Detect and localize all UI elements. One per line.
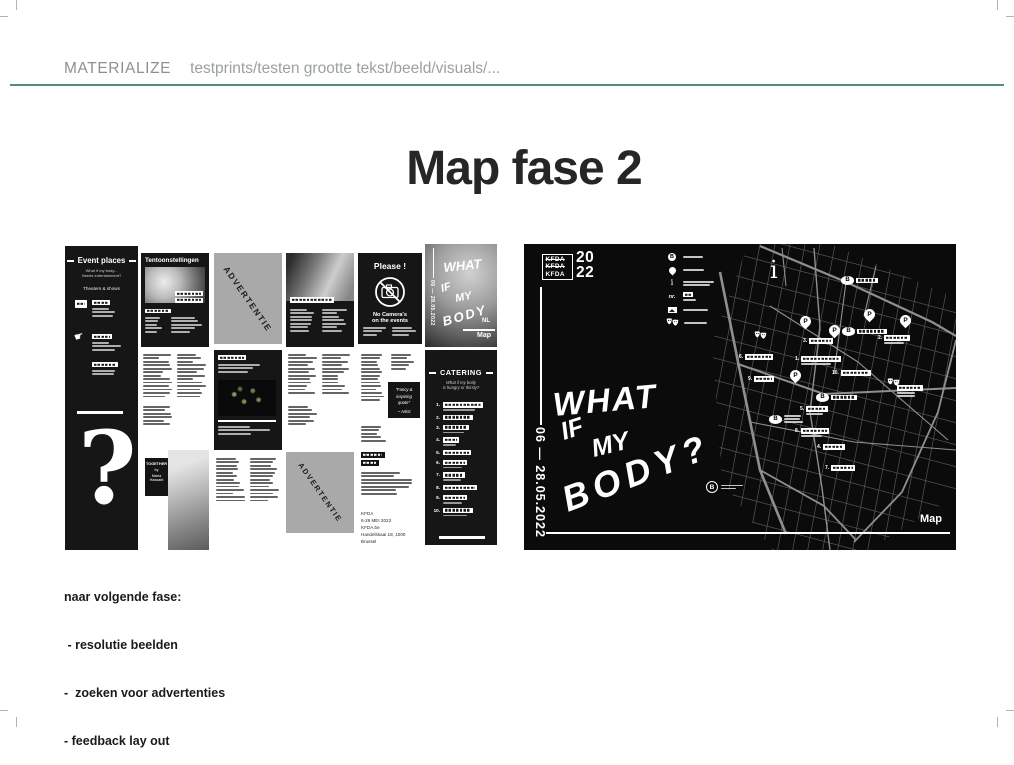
catering-item: 9. [431, 495, 493, 504]
text-line [250, 479, 270, 481]
together-line: TOGETHER [145, 462, 168, 466]
numbered-venue-label: 5. [800, 406, 828, 415]
parking-pin-icon: P [898, 313, 914, 329]
text-line [216, 468, 238, 470]
schedule-col-right [171, 317, 205, 334]
text-line [361, 475, 394, 477]
text-line [177, 392, 202, 394]
text-line [392, 327, 412, 329]
catering-subtitle2: is hungry or thirsty? [425, 385, 497, 390]
parking-pin-icon: P [862, 307, 878, 323]
notes-item: - feedback lay out [64, 733, 225, 749]
text-line [143, 371, 163, 373]
list-label-box [92, 334, 112, 339]
text-line [288, 354, 306, 356]
catering-name-box [443, 402, 483, 408]
venue-name-box [801, 428, 829, 434]
no-camera-icon [373, 275, 407, 309]
numbered-venue-label: 7. [825, 465, 855, 471]
text-line [288, 385, 307, 387]
text-line [361, 354, 382, 356]
venue-number: 10. [832, 370, 839, 376]
text-line [801, 363, 831, 365]
cover-lang: NL [482, 318, 490, 324]
text-column [288, 354, 318, 396]
text-line [145, 331, 157, 333]
venue-name-box [801, 356, 841, 362]
header: MATERIALIZE testprints/testen grootte te… [64, 60, 500, 78]
text-line [143, 423, 170, 425]
text-line [322, 357, 341, 359]
text-line [143, 382, 172, 384]
text-line [143, 357, 159, 359]
venue-number: 4. [817, 444, 821, 450]
text-line [143, 409, 165, 411]
text-line [171, 320, 198, 322]
venue-name-box [884, 335, 910, 341]
text-line [250, 493, 273, 495]
question-mark: ? [78, 418, 137, 518]
catering-number: 7. [431, 472, 440, 478]
catering-title: CATERING [440, 368, 482, 377]
text-line [218, 426, 250, 428]
text-line [216, 496, 245, 498]
svg-text:WHAT: WHAT [443, 256, 483, 275]
text-line [443, 444, 456, 446]
venue-number: 9. [748, 376, 752, 382]
text-line [361, 375, 380, 377]
catering-name-box [443, 472, 465, 478]
text-line [361, 364, 378, 366]
cover-rule [463, 329, 495, 331]
panel-please: Please ! No Camera's on the events [358, 253, 422, 344]
text-line [361, 429, 379, 431]
text-line [250, 489, 279, 491]
text-line [143, 354, 171, 356]
catering-end-rule [439, 536, 485, 539]
text-line [177, 396, 200, 398]
text-line [443, 409, 475, 411]
svg-text:MY: MY [454, 289, 474, 305]
text-line [288, 361, 313, 363]
metro-stop: B [816, 393, 857, 402]
info-point-glyph: i [770, 256, 778, 284]
text-line [145, 327, 162, 329]
text-line [288, 416, 310, 418]
text-line [322, 361, 348, 363]
quote-line: "Fancy & [388, 387, 420, 392]
catering-item: 6. [431, 460, 493, 469]
cover-dates-vertical: 06 — 28.05.2022 [429, 280, 435, 326]
text-line [361, 396, 384, 398]
text-line [288, 364, 308, 366]
text-line [784, 418, 800, 420]
cover-map-label: Map [477, 332, 491, 339]
stop-name-box [857, 329, 887, 335]
text-line [250, 468, 277, 470]
text-line [250, 486, 269, 488]
text-line [218, 371, 248, 373]
hand-icon: ☛ [72, 329, 85, 344]
text-line [177, 375, 205, 377]
text-line [361, 368, 380, 370]
catering-number: 10. [431, 508, 440, 514]
numbered-venue-label: 8. [795, 428, 829, 437]
text-line [177, 354, 196, 356]
text-line [897, 392, 915, 394]
text-column [288, 406, 318, 427]
parking-pin-icon: P [788, 368, 804, 384]
text-line [322, 392, 349, 394]
text-line [801, 435, 822, 437]
crop-mark [0, 710, 8, 711]
text-line [361, 486, 409, 488]
numbered-venue-label: 3. [803, 338, 833, 344]
text-line [177, 385, 206, 387]
brussels-b-logo: B [706, 481, 743, 493]
metro-b-icon: B [841, 276, 854, 285]
crop-mark [16, 0, 17, 10]
text-line [361, 385, 381, 387]
text-line [322, 330, 342, 332]
text-line [216, 482, 240, 484]
text-line [216, 472, 233, 474]
panel-together: TOGETHER by Maria Hassabi [141, 350, 209, 550]
notes-item: - resolutie beelden [64, 637, 225, 653]
text-line [361, 357, 380, 359]
text-line [290, 312, 314, 314]
text-line [322, 323, 346, 325]
notes-heading: naar volgende fase: [64, 589, 225, 605]
text-line [361, 389, 376, 391]
metro-b-icon: B [842, 327, 855, 336]
text-block [361, 472, 417, 496]
venue-name-box [841, 370, 871, 376]
text-line [288, 371, 309, 373]
crop-mark [1006, 710, 1014, 711]
venue-label [897, 385, 923, 397]
text-line [363, 330, 382, 332]
text-block [92, 308, 124, 318]
text-line [92, 308, 109, 310]
text-line [361, 479, 412, 481]
numbered-venue-label: 9. [748, 376, 774, 382]
text-line [361, 361, 377, 363]
text-line [290, 316, 312, 318]
text-line [92, 349, 115, 351]
text-line [288, 368, 315, 370]
text-line [361, 436, 381, 438]
text-line [143, 413, 171, 415]
venue-name-box [809, 338, 833, 344]
text-line [361, 382, 380, 384]
text-line [250, 465, 271, 467]
text-line [361, 433, 377, 435]
catering-name-box [443, 485, 477, 491]
text-line [288, 357, 317, 359]
text-block [363, 327, 388, 337]
svg-text:IF: IF [440, 281, 453, 295]
panel-cover: 06 — 28.05.2022 WHAT IF MY BODY NL Map [425, 244, 497, 347]
venue-name-box [831, 465, 855, 471]
plants-photo [218, 380, 276, 416]
text-line [143, 361, 169, 363]
panel-advertentie-2-col: ADVERTENTIE [286, 350, 354, 550]
text-line [391, 361, 414, 363]
text-line [92, 373, 114, 375]
catering-list: 1.2.3.4.5.6.7.8.9.10. [431, 402, 493, 520]
no-camera-line2: on the events [358, 318, 422, 324]
text-line [177, 371, 197, 373]
text-line [250, 482, 273, 484]
text-line [322, 368, 349, 370]
text-line [288, 420, 314, 422]
text-line [361, 489, 396, 491]
info-org: KFDA [361, 510, 422, 517]
parking-pin-icon: P [798, 314, 814, 330]
catering-item: 2. [431, 415, 493, 421]
text-line [250, 472, 275, 474]
text-block [218, 364, 274, 374]
text-line [143, 385, 169, 387]
text-line [92, 315, 113, 317]
text-line [322, 364, 342, 366]
text-line [218, 433, 251, 435]
info-address: Handelskaai 18, 1000 Brussel [361, 531, 422, 545]
crop-mark [997, 717, 998, 727]
text-line [177, 389, 200, 391]
venue-icon [75, 300, 87, 308]
text-line [784, 421, 803, 423]
panel-event-places: Event places What if my body... Needs en… [65, 246, 138, 550]
quote-line: quote" [388, 400, 420, 405]
stop-name-box [831, 395, 857, 401]
event-places-subtitle2: Needs entertainment? [65, 273, 138, 278]
venue-number: 1. [795, 356, 799, 362]
text-line [391, 368, 406, 370]
text-block [290, 309, 318, 333]
text-line [290, 319, 312, 321]
text-line [361, 392, 382, 394]
notes-item: - zoeken voor advertenties [64, 685, 225, 701]
catering-item: 3. [431, 425, 493, 434]
text-line [143, 389, 172, 391]
text-line [250, 458, 276, 460]
text-line [391, 354, 411, 356]
text-line [177, 357, 201, 359]
panel-advertentie-1: ADVERTENTIE [214, 253, 282, 344]
text-line [218, 429, 270, 431]
photo-caption-box [175, 291, 203, 296]
text-line [92, 370, 115, 372]
panel-catering: CATERING What if my body is hungry or th… [425, 350, 497, 545]
text-line [288, 389, 305, 391]
schedule-title-box [145, 309, 171, 313]
text-line [361, 472, 400, 474]
header-rule [10, 84, 1004, 86]
text-line [143, 406, 170, 408]
advertentie-label: ADVERTENTIE [296, 461, 344, 524]
catering-item: 4. [431, 437, 493, 446]
next-phase-notes: naar volgende fase: - resolutie beelden … [64, 557, 225, 765]
tentoonstellingen-title: Tentoonstellingen [145, 257, 209, 264]
together-label: TOGETHER by Maria Hassabi [145, 458, 168, 496]
venue-number: 8. [795, 428, 799, 434]
venue-number: 3. [803, 338, 807, 344]
text-line [216, 493, 233, 495]
text-line [216, 461, 239, 463]
list-label-box [92, 362, 118, 367]
text-line [216, 500, 245, 502]
plants-rule [218, 420, 276, 422]
text-line [216, 465, 237, 467]
text-line [177, 378, 193, 380]
text-line [177, 368, 204, 370]
fringe-label-box [361, 452, 385, 458]
cover-spine-line [433, 248, 434, 278]
text-line [171, 317, 195, 319]
text-line [361, 371, 382, 373]
text-line [250, 496, 278, 498]
text-line [288, 392, 315, 394]
text-line [288, 406, 308, 408]
together-line: by [145, 468, 168, 472]
text-line [250, 475, 273, 477]
text-column [322, 354, 352, 396]
text-line [171, 327, 195, 329]
map-label: Map [920, 513, 942, 525]
text-line [288, 409, 312, 411]
map-bottom-rule [546, 532, 950, 534]
text-line [288, 423, 306, 425]
text-line [92, 311, 115, 313]
text-line [216, 479, 234, 481]
catering-item: 8. [431, 485, 493, 491]
catering-number: 8. [431, 485, 440, 491]
text-line [250, 461, 273, 463]
text-line [443, 515, 467, 517]
text-line [322, 389, 342, 391]
text-line [322, 385, 345, 387]
text-line [322, 312, 337, 314]
text-line [288, 378, 310, 380]
info-dates: 6-28 MEI 2022 [361, 517, 422, 524]
numbered-venue-label: 2. [878, 335, 910, 344]
panel-photo-what [286, 253, 354, 347]
text-line [322, 316, 339, 318]
text-column [216, 458, 246, 503]
catering-name-box [443, 425, 469, 431]
catering-name-box [443, 508, 473, 514]
text-line [143, 378, 170, 380]
text-line [143, 392, 170, 394]
venue-name-box [745, 354, 773, 360]
text-block [92, 370, 122, 377]
text-line [290, 330, 309, 332]
catering-item: 5. [431, 450, 493, 456]
text-column [250, 458, 280, 503]
numbered-venue-label: 1. [795, 356, 841, 365]
photo-caption-box [290, 297, 334, 303]
text-line [177, 382, 202, 384]
text-line [322, 319, 344, 321]
panel-advertentie-2: ADVERTENTIE [286, 452, 354, 533]
crop-mark [997, 0, 998, 10]
venue-number: 6. [739, 354, 743, 360]
text-line [897, 395, 915, 397]
text-line [721, 485, 743, 487]
text-line [361, 493, 397, 495]
text-line [143, 375, 161, 377]
text-line [363, 334, 377, 336]
catering-name-box [443, 437, 459, 443]
text-line [145, 317, 160, 319]
print-spread-mockup: Event places What if my body... Needs en… [65, 244, 497, 550]
catering-number: 5. [431, 450, 440, 456]
text-line [361, 399, 380, 401]
catering-number: 4. [431, 437, 440, 443]
venue-name-box [754, 376, 774, 382]
text-line [288, 413, 317, 415]
event-places-title: Event places [78, 256, 126, 265]
text-column [361, 426, 387, 443]
fabric-photo [286, 253, 354, 301]
plants-subpanel [214, 350, 282, 450]
stop-name-box [856, 278, 878, 284]
text-block [92, 342, 124, 352]
text-column [361, 354, 387, 403]
catering-name-box [443, 460, 467, 466]
catering-number: 6. [431, 460, 440, 466]
text-line [290, 309, 307, 311]
plants-title-box [218, 355, 246, 360]
quote-line: inspiring [388, 394, 420, 399]
venue-name-box [806, 406, 828, 412]
metro-stop: B [769, 415, 803, 424]
text-line [171, 331, 190, 333]
text-block [322, 309, 350, 333]
quote-box: "Fancy & inspiring quote" ~ Artist [388, 382, 420, 418]
list-label-box [92, 300, 110, 305]
text-line [391, 357, 407, 359]
text-line [145, 320, 158, 322]
catering-item: 7. [431, 472, 493, 481]
panel-quote-info: "Fancy & inspiring quote" ~ Artist KFDA … [358, 350, 422, 550]
text-line [92, 345, 121, 347]
venue-number: 7. [825, 465, 829, 471]
text-line [322, 354, 350, 356]
text-line [361, 426, 381, 428]
text-line [806, 413, 823, 415]
metro-b-icon: B [769, 415, 782, 424]
parking-pin-icon: P [827, 323, 843, 339]
text-line [443, 467, 462, 469]
event-places-title-row: Event places [65, 256, 138, 265]
venue-number: 2. [878, 335, 882, 341]
text-line [322, 378, 338, 380]
crop-mark [0, 16, 8, 17]
text-line [361, 378, 378, 380]
page-title: Map fase 2 [406, 141, 641, 196]
please-title: Please ! [358, 261, 422, 271]
info-site: KFDA.be [361, 524, 422, 531]
text-line [361, 440, 386, 442]
text-column [177, 354, 207, 399]
text-line [143, 420, 164, 422]
text-line [288, 375, 316, 377]
text-line [250, 500, 268, 502]
fringe-label-box [361, 460, 379, 466]
